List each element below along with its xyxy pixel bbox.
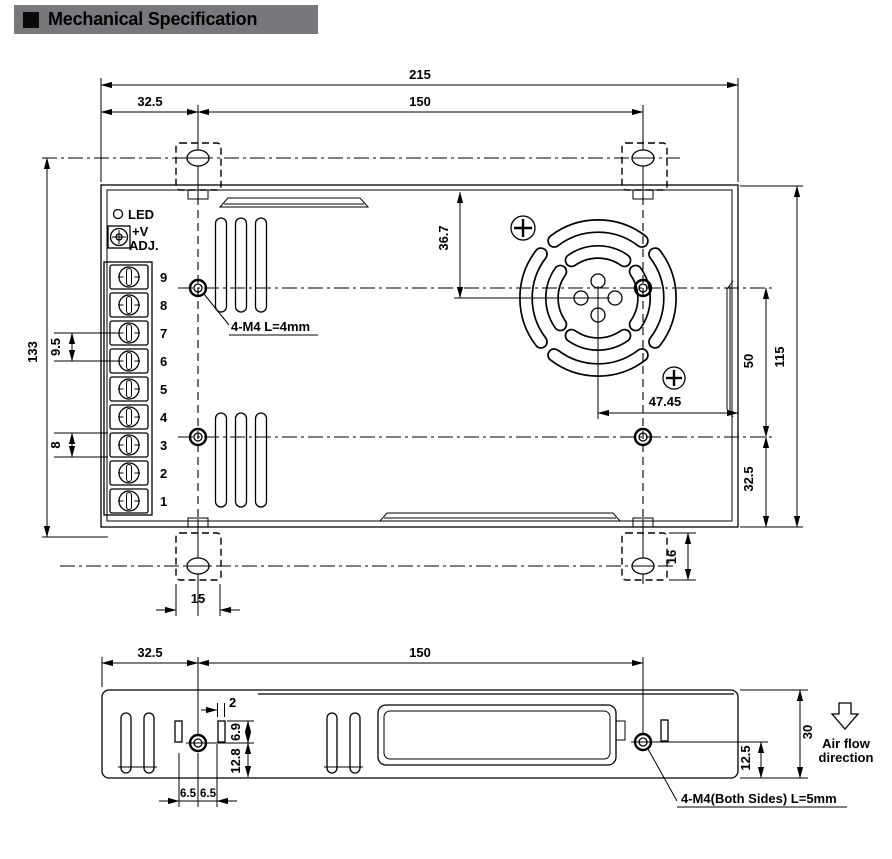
dim-terminal-height-8: 8 [48,433,108,457]
terminal-number: 7 [160,326,167,341]
dim-slot-top-6-9: 6.9 [206,721,254,743]
terminal-number: 1 [160,494,167,509]
svg-text:8: 8 [48,441,63,448]
vent-slots-upper [216,218,267,312]
terminal-cell: 2 [110,461,167,485]
svg-text:50: 50 [741,354,756,368]
terminal-number: 3 [160,438,167,453]
airflow-label-1: Air flow [822,736,871,751]
svg-text:115: 115 [772,347,787,368]
dim-slot-width-2: 2 [201,695,236,717]
terminal-cell: 5 [110,377,167,401]
svg-text:47.45: 47.45 [649,394,682,409]
svg-text:6.5: 6.5 [200,788,217,800]
mounting-tabs [176,143,667,580]
section-title: Mechanical Specification [48,9,257,30]
adj-label: ADJ. [129,238,159,253]
vplus-label: +V [132,224,149,239]
bottom-louver [380,513,620,521]
svg-text:30: 30 [800,725,815,739]
svg-text:9.5: 9.5 [48,338,63,356]
terminal-cell: 4 [110,405,168,429]
side-small-slots [175,720,668,742]
svg-text:32.5: 32.5 [137,94,162,109]
mechanical-specification-page: Mechanical Specification [0,0,892,859]
screw-note-label: 4-M4(Both Sides) L=5mm [681,791,837,806]
terminal-number: 9 [160,270,167,285]
terminal-cell: 8 [110,293,167,317]
section-title-bar: Mechanical Specification [14,5,318,34]
terminal-cell: 3 [110,433,167,457]
terminal-number: 5 [160,382,167,397]
svg-text:16: 16 [664,550,679,564]
terminal-block: 9 8 7 6 5 [104,262,168,515]
svg-text:15: 15 [191,591,205,606]
top-louver [220,198,368,207]
dim-hole-bottom-12-8: 12.8 [228,743,248,777]
dim-fan-from-top-36-7: 36.7 [436,192,588,298]
side-opening [378,705,625,765]
airflow-annotation: Air flow direction [819,703,874,765]
dim-bottom-offset-32-5: 32.5 [741,437,766,527]
terminal-number: 8 [160,298,167,313]
mechanical-drawing: LED +V ADJ. 9 8 [0,0,892,859]
svg-text:6.5: 6.5 [180,788,197,800]
vent-slots-lower [216,413,267,507]
dim-hole-offsets-6-5: 6.5 6.5 [159,744,237,807]
airflow-label-2: direction [819,750,874,765]
terminal-number: 2 [160,466,167,481]
side-view: 32.5 150 2 6.9 12.8 [102,645,874,807]
panel-screw [663,367,685,389]
screw-note-top: 4-M4 L=4mm [204,294,318,335]
top-view: LED +V ADJ. 9 8 [25,67,803,616]
dim-total-height-133: 133 [25,158,108,537]
svg-text:133: 133 [25,341,40,363]
side-m4-holes [186,734,655,751]
dim-tab-height-16: 16 [664,533,696,580]
panel-screw [511,216,535,240]
dim-left-offset-32-5: 32.5 [101,94,198,112]
dim-hole-from-bottom-12-5: 12.5 [652,742,768,778]
svg-text:215: 215 [409,67,431,82]
svg-text:32.5: 32.5 [137,645,162,660]
title-square-bullet-icon [23,12,39,28]
terminal-cell: 1 [110,489,167,513]
svg-text:36.7: 36.7 [436,225,451,250]
svg-text:6.9: 6.9 [228,723,243,741]
screw-note-label: 4-M4 L=4mm [231,319,310,334]
dim-hole-rows-50: 50 [741,288,766,437]
dim-hole-span-150: 150 [198,94,643,112]
svg-text:2: 2 [229,695,236,710]
svg-text:32.5: 32.5 [741,466,756,491]
led-indicator: LED [114,207,155,222]
svg-text:12.5: 12.5 [738,745,753,770]
svg-text:12.8: 12.8 [228,748,243,773]
dim-side-hole-span-150: 150 [198,645,643,733]
led-label: LED [128,207,154,222]
terminal-number: 4 [160,410,168,425]
voltage-adjust-pot: +V ADJ. [108,224,159,253]
terminal-cell: 9 [110,265,167,289]
svg-text:150: 150 [409,645,431,660]
svg-text:150: 150 [409,94,431,109]
airflow-down-arrow-icon [832,703,858,729]
terminal-number: 6 [160,354,167,369]
